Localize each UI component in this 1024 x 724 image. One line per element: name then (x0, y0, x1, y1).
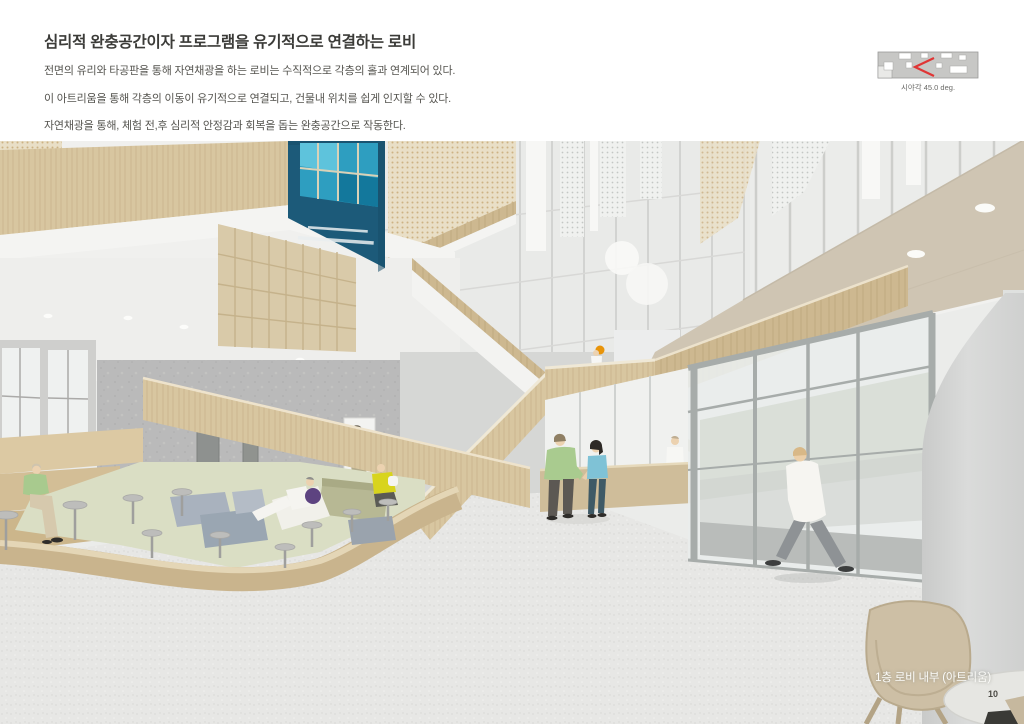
page-title: 심리적 완충공간이자 프로그램을 유기적으로 연결하는 로비 (44, 30, 416, 52)
body-text: 전면의 유리와 타공판을 통해 자연채광을 하는 로비는 수직적으로 각층의 홀… (44, 62, 604, 145)
view-angle-caption: 시야각 45.0 deg. (868, 82, 988, 93)
presentation-slide: 심리적 완충공간이자 프로그램을 유기적으로 연결하는 로비 전면의 유리와 타… (0, 0, 1024, 724)
pendant-lamp (626, 263, 668, 305)
body-line-2: 이 아트리움을 통해 각층의 이동이 유기적으로 연결되고, 건물내 위치를 쉽… (44, 90, 604, 106)
page-number: 10 (988, 689, 998, 699)
view-angle-diagram (874, 46, 982, 80)
render-caption: 1층 로비 내부 (아트리움) (875, 669, 991, 685)
body-line-1: 전면의 유리와 타공판을 통해 자연채광을 하는 로비는 수직적으로 각층의 홀… (44, 62, 604, 78)
body-line-3: 자연채광을 통해, 체험 전,후 심리적 안정감과 회복을 돕는 완충공간으로 … (44, 117, 604, 133)
lobby-rendering (0, 141, 1024, 724)
